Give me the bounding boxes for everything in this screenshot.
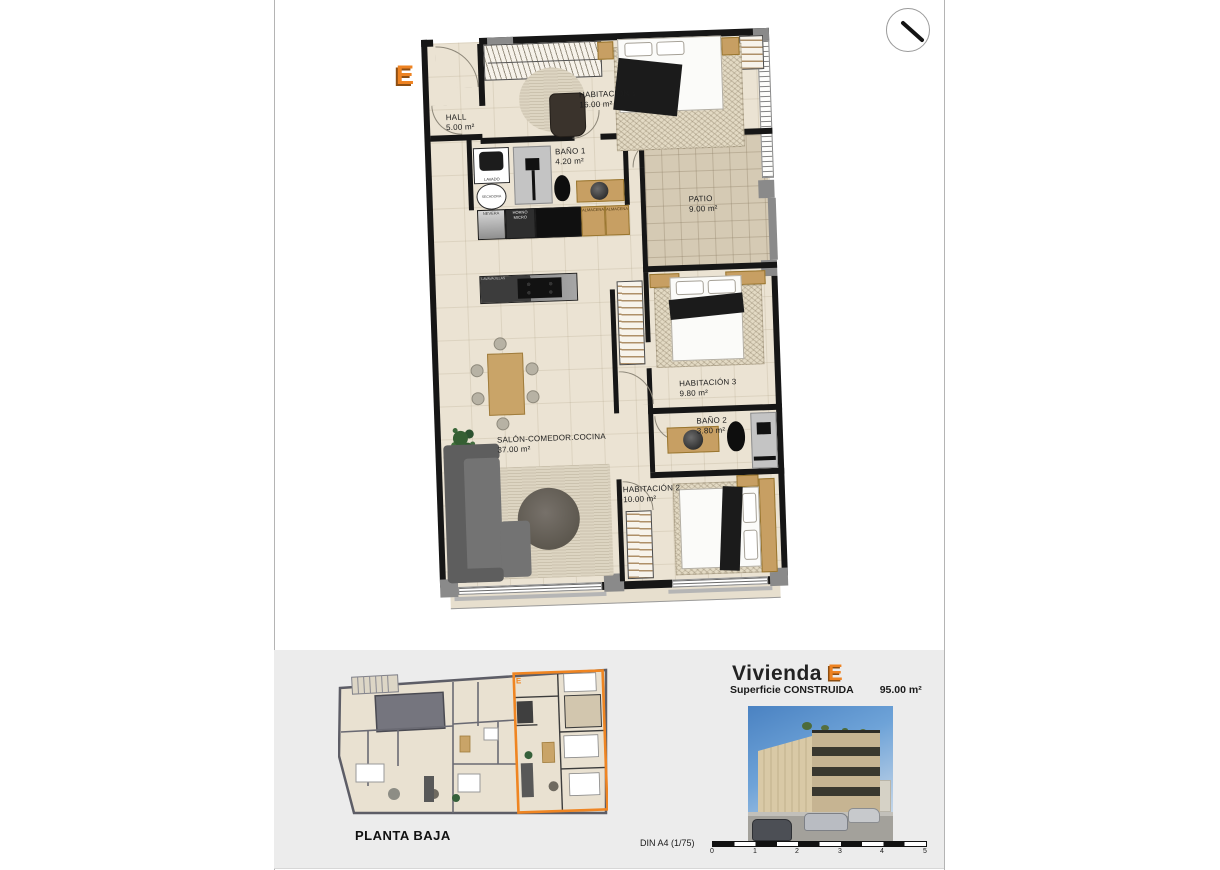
mini-plan: E <box>338 666 608 816</box>
patio-railing <box>768 198 778 260</box>
surface-label: Superficie CONSTRUIDA <box>730 684 854 696</box>
unit-letter-badge: E <box>396 60 414 91</box>
sofa-chaise <box>500 520 532 577</box>
photo-car <box>752 819 792 841</box>
washer-drum <box>479 152 503 172</box>
wardrobe-bedroom2 <box>759 478 778 573</box>
pillow <box>743 530 758 560</box>
photo-balcony-row <box>812 787 880 796</box>
page-canvas: E <box>0 0 1220 870</box>
scale-tick: 3 <box>838 848 842 855</box>
fridge-label: NEVERA <box>483 210 500 216</box>
toilet-bath2 <box>727 421 746 452</box>
nightstand <box>597 41 614 60</box>
bed-bedroom2 <box>679 486 762 569</box>
photo-car <box>804 813 848 831</box>
kitchen-unit <box>535 207 582 239</box>
room-label-patio: PATIO 9.00 m² <box>689 194 718 215</box>
toilet-bath1 <box>554 175 571 202</box>
corridor-closet <box>617 280 646 365</box>
sofa-seat <box>464 458 504 577</box>
dryer-label: SECADORA <box>482 194 502 199</box>
room-label-bath2: BAÑO 2 3.80 m² <box>696 416 727 437</box>
closet-bedroom2 <box>626 510 654 579</box>
photo-car <box>848 808 880 823</box>
cooktop <box>517 277 562 299</box>
shower-fixture <box>754 456 776 461</box>
dwelling-title-text: Vivienda <box>732 662 822 685</box>
sofa-arm <box>447 567 503 583</box>
storage-cabinet: ALMACENAJE <box>605 205 630 236</box>
building-photo <box>748 706 893 843</box>
room-label-bedroom3: HABITACIÓN 3 9.80 m² <box>679 377 737 399</box>
photo-balcony-row <box>812 767 880 776</box>
mini-plan-unit-letter: E <box>516 676 522 685</box>
bed-bedroom3 <box>669 275 744 361</box>
room-label-hall: HALL 5.00 m² <box>446 112 475 133</box>
surface-line: Superficie CONSTRUIDA95.00 m² <box>730 684 922 696</box>
pillar <box>758 180 775 199</box>
room-label-bedroom1: HABITACIÓN 1 16.00 m² <box>579 89 637 111</box>
room-label-bath1: BAÑO 1 4.20 m² <box>555 146 586 167</box>
surface-value: 95.00 m² <box>880 684 922 696</box>
dining-table <box>487 353 525 416</box>
dishwasher-label: LAVAVAJILLAS <box>481 276 505 281</box>
blanket <box>669 292 745 320</box>
floor-plan: LAVADO SECADORA NEVERA HORNO MICRO ALMAC… <box>421 28 789 614</box>
pillow <box>624 42 652 57</box>
scale-tick: 4 <box>880 848 884 855</box>
shower-fixture <box>525 158 539 170</box>
dwelling-title-letter: E <box>828 660 843 685</box>
scale-tick: 0 <box>710 848 714 855</box>
fridge: NEVERA <box>477 209 506 240</box>
cabinet-label: ALMACENAJE <box>582 207 606 213</box>
scale-tick: 1 <box>753 848 757 855</box>
scale-tick: 5 <box>923 848 927 855</box>
oven-label: HORNO MICRO <box>513 209 528 219</box>
storage-cabinet: ALMACENAJE <box>581 206 606 237</box>
washer: LAVADO <box>473 147 510 184</box>
north-arrow-icon <box>884 6 932 54</box>
scale-label: DIN A4 (1/75) <box>640 838 695 848</box>
scale-tick: 2 <box>795 848 799 855</box>
shower-fixture <box>757 422 771 434</box>
mini-plan-label: PLANTA BAJA <box>355 828 451 843</box>
scale-bar <box>712 841 927 847</box>
pillow <box>708 279 736 294</box>
footer-panel: E PLANTA BAJA ViviendaE Superficie CONST… <box>274 650 944 869</box>
closet-bedroom1 <box>739 35 764 70</box>
dwelling-title: ViviendaE <box>732 660 843 686</box>
photo-balcony-row <box>812 747 880 756</box>
headboard-shelf <box>736 474 758 487</box>
room-label-bedroom2: HABITACIÓN 2 10.00 m² <box>623 483 681 505</box>
photo-roof-plants <box>802 722 812 730</box>
page-border-right <box>944 0 945 870</box>
mini-plan-drawing: E <box>338 666 608 816</box>
pillow <box>742 493 757 523</box>
nightstand <box>721 37 740 56</box>
cabinet-label: ALMACENAJE <box>606 206 630 212</box>
room-label-living: SALÓN-COMEDOR.COCINA 37.00 m² <box>497 432 607 456</box>
oven-micro: HORNO MICRO <box>505 208 536 239</box>
pillow <box>676 280 704 295</box>
washer-label: LAVADO <box>475 176 509 182</box>
blanket <box>720 486 743 571</box>
pillow <box>656 41 684 56</box>
